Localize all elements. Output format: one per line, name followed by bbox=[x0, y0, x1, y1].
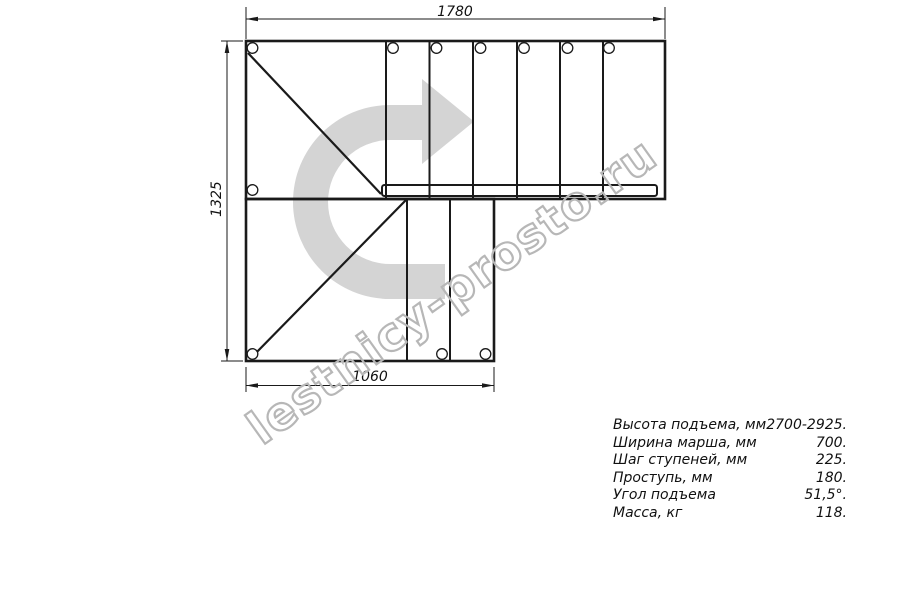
spec-value: 51,5°. bbox=[804, 487, 847, 505]
spec-row-tread-depth: Проступь, мм 180. bbox=[613, 470, 847, 488]
dimension-top-value: 1780 bbox=[437, 4, 473, 20]
spec-row-climb-angle: Угол подъема 51,5°. bbox=[613, 487, 847, 505]
spec-value: 700. bbox=[816, 435, 847, 453]
spec-value: 180. bbox=[816, 470, 847, 488]
spec-label: Высота подъема, мм bbox=[613, 417, 766, 435]
spec-row-rise-height: Высота подъема, мм 2700-2925. bbox=[613, 417, 847, 435]
spec-label: Угол подъема bbox=[613, 487, 716, 505]
dimension-top: 1780 bbox=[246, 4, 665, 39]
spec-value: 225. bbox=[816, 452, 847, 470]
spec-label: Шаг ступеней, мм bbox=[613, 452, 747, 470]
spec-row-flight-width: Ширина марша, мм 700. bbox=[613, 435, 847, 453]
spec-label: Масса, кг bbox=[613, 505, 682, 523]
specs-table: Высота подъема, мм 2700-2925. Ширина мар… bbox=[613, 417, 847, 523]
dimension-left: 1325 bbox=[209, 41, 243, 361]
spec-row-step-pitch: Шаг ступеней, мм 225. bbox=[613, 452, 847, 470]
spec-row-mass: Масса, кг 118. bbox=[613, 505, 847, 523]
spec-label: Ширина марша, мм bbox=[613, 435, 757, 453]
spec-value: 118. bbox=[816, 505, 847, 523]
dimension-left-value: 1325 bbox=[209, 181, 225, 217]
spec-label: Проступь, мм bbox=[613, 470, 713, 488]
spec-value: 2700-2925. bbox=[766, 417, 847, 435]
blueprint-page: 1780 1325 1060 lestnicy-prosto. bbox=[0, 0, 900, 600]
